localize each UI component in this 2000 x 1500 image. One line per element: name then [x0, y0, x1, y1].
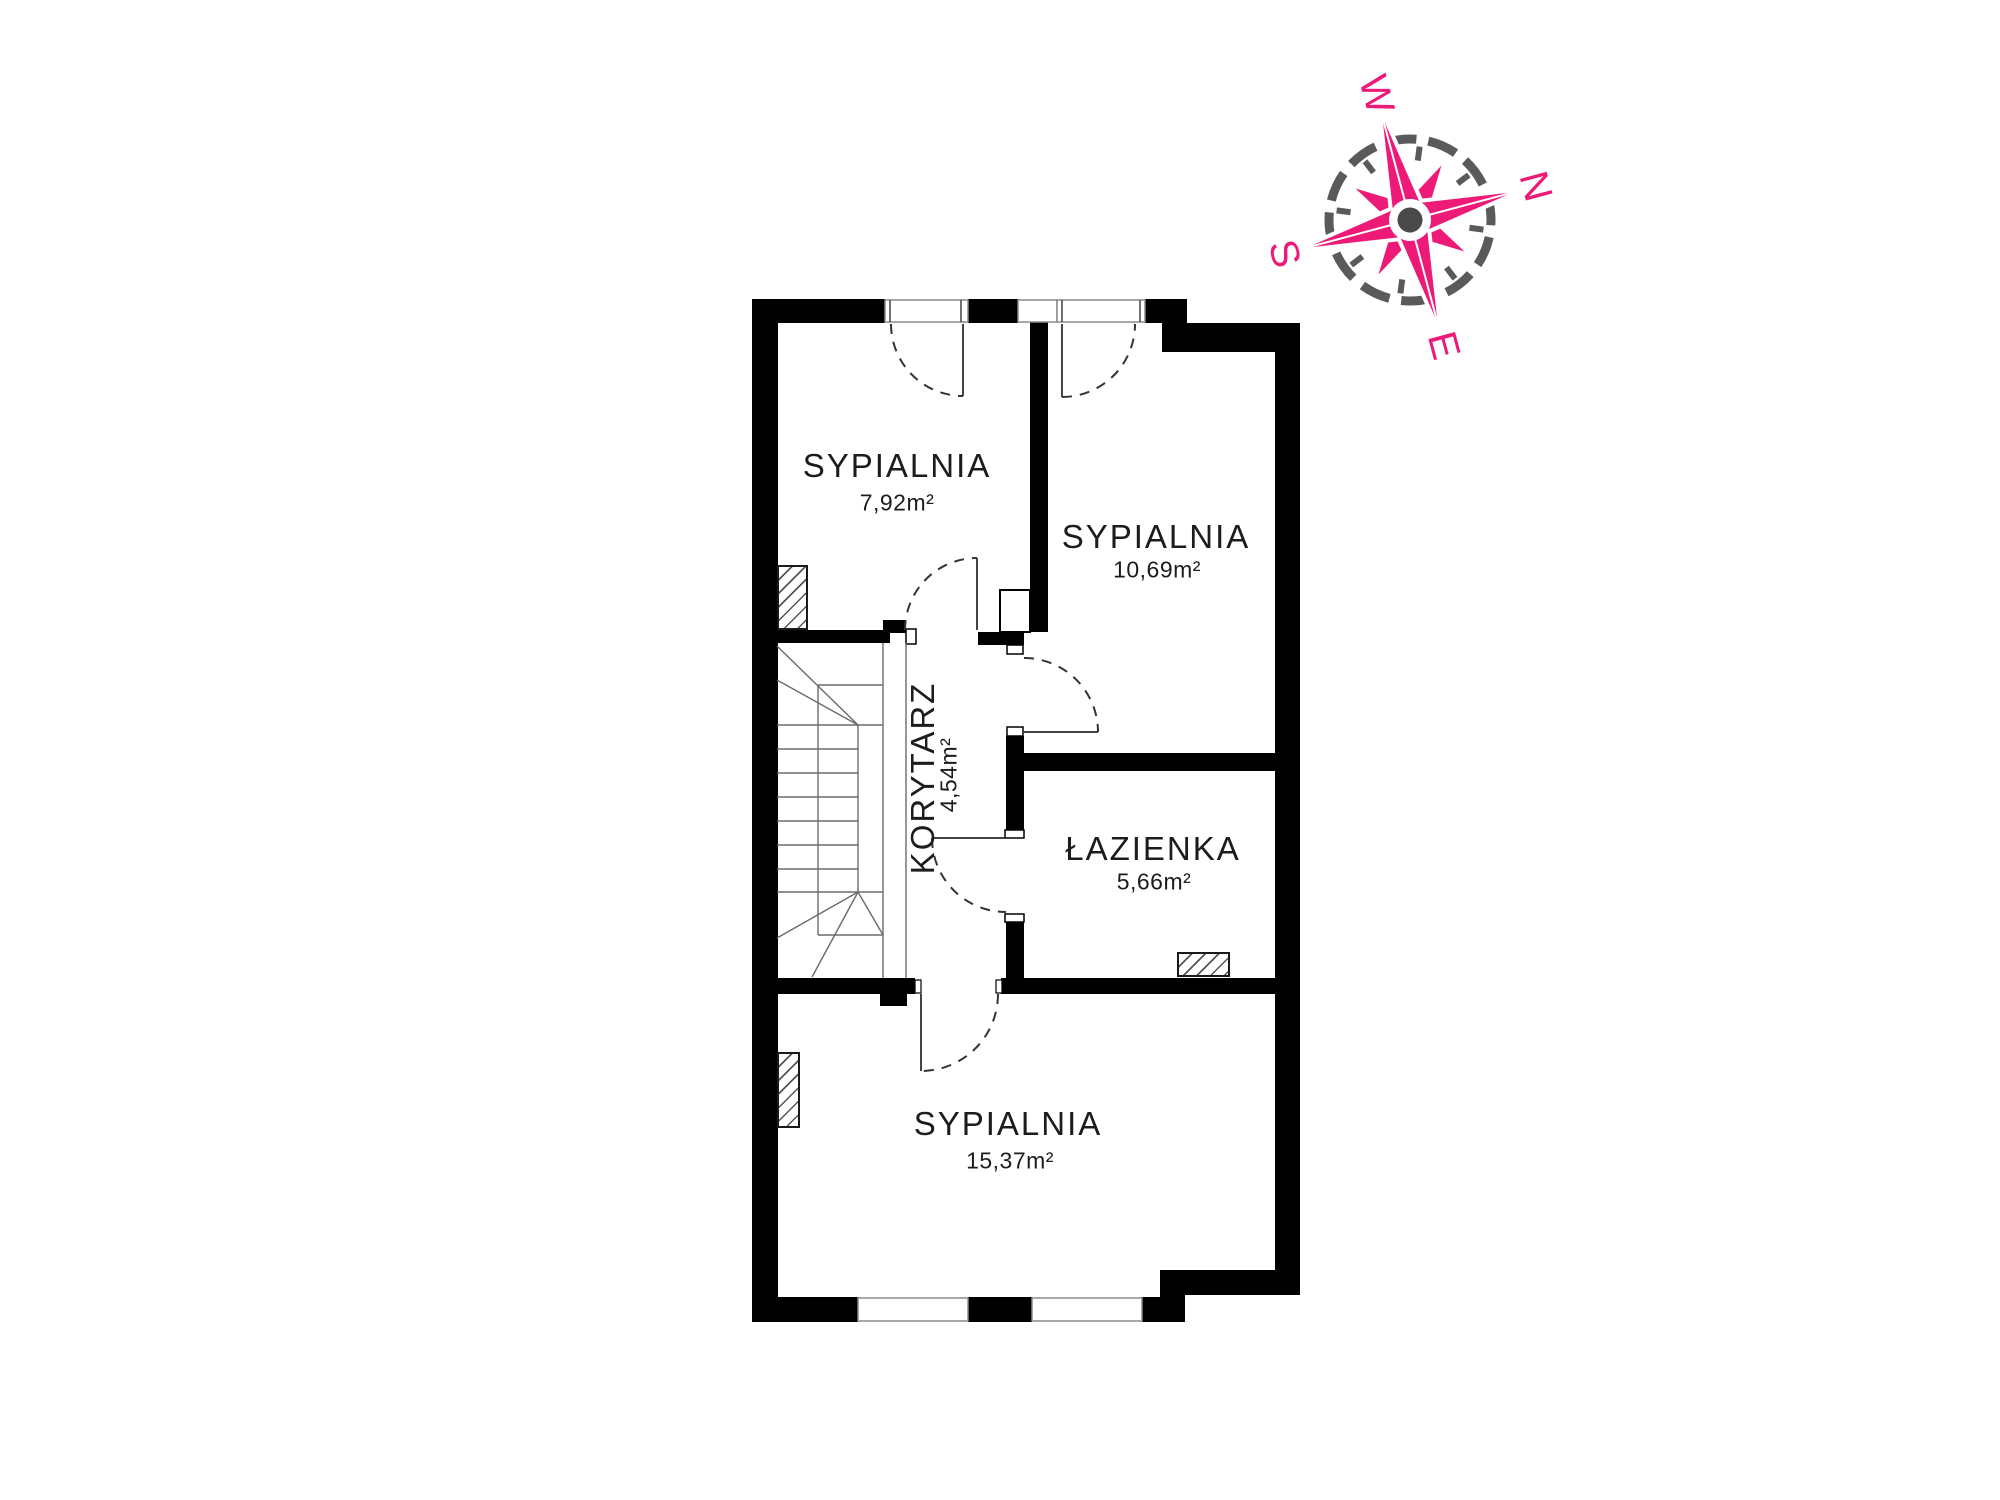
wall-bedroom3-top-right [1001, 978, 1275, 994]
wall-stairs-top-stub [883, 620, 906, 633]
interior-walls [752, 322, 1275, 1006]
door-jamb [906, 629, 916, 644]
compass-east-label: E [1419, 327, 1468, 364]
room-area-bedroom2: 10,69m² [1113, 557, 1201, 584]
stairs [777, 643, 906, 978]
door-jamb [996, 980, 1002, 993]
room-area-bedroom1: 7,92m² [860, 490, 935, 517]
window-bottom-2 [1032, 1298, 1142, 1321]
wall-bottom-c [1142, 1297, 1185, 1322]
compass-west-label: W [1350, 70, 1402, 118]
door-swing-arc [1024, 658, 1098, 732]
wall-top-b [968, 299, 1018, 323]
door-jamb [1007, 645, 1023, 654]
top-door-opening-2 [1057, 300, 1145, 322]
compass-south-label: S [1260, 235, 1309, 272]
wall-bedroom-divider [1030, 322, 1048, 632]
wall-bath-left-lower [1006, 922, 1024, 978]
door-pocket [1000, 590, 1030, 632]
room-name-bathroom: ŁAZIENKA [1065, 830, 1241, 868]
shaft-hatch-bedroom1 [777, 565, 808, 630]
wall-bath-left-upper [1006, 736, 1024, 830]
wall-bottom-b [968, 1297, 1032, 1322]
door-swing-arc [1062, 324, 1135, 397]
room-name-bedroom2: SYPIALNIA [1062, 518, 1251, 556]
wall-right [1275, 323, 1300, 1295]
top-door-opening-1 [885, 300, 968, 322]
door-swing-arc [905, 558, 977, 630]
floor-plan-drawing: N E S W [0, 0, 2000, 1500]
floor-plan-page: N E S W SYPIALNIA 7,92m² SYPIALNIA 10,69… [0, 0, 2000, 1500]
wall-stairs-top [775, 630, 890, 643]
wall-bedroom3-top-left [752, 978, 915, 994]
door-jamb [1005, 914, 1024, 922]
compass-north-label: N [1511, 167, 1561, 206]
wall-step-bottom-right [1160, 1270, 1300, 1295]
door-jamb [1005, 830, 1024, 838]
shaft-hatch-bedroom3 [777, 1052, 800, 1128]
room-area-bathroom: 5,66m² [1117, 869, 1192, 896]
door-swing-arc [921, 994, 998, 1071]
wall-top-c [1145, 299, 1187, 323]
wall-top-a [752, 299, 885, 323]
room-area-corridor: 4,54m² [936, 738, 963, 813]
shaft-hatch-bathroom [1177, 952, 1230, 977]
wall-corridor-stub [978, 632, 1024, 645]
wall-bathroom-top [1024, 753, 1275, 771]
window-bottom-1 [858, 1298, 968, 1321]
room-area-bedroom3: 15,37m² [966, 1148, 1054, 1175]
door-swing-arc [891, 324, 963, 396]
wall-bottom-a [752, 1297, 858, 1322]
door-jamb [1007, 727, 1023, 736]
wall-left [752, 299, 778, 1322]
room-name-bedroom1: SYPIALNIA [803, 447, 992, 485]
top-wall-notch [1018, 300, 1057, 322]
door-jamb [915, 980, 921, 993]
room-name-bedroom3: SYPIALNIA [914, 1105, 1103, 1143]
wall-stub-below [880, 994, 907, 1006]
door-swing-arc [932, 838, 1006, 912]
